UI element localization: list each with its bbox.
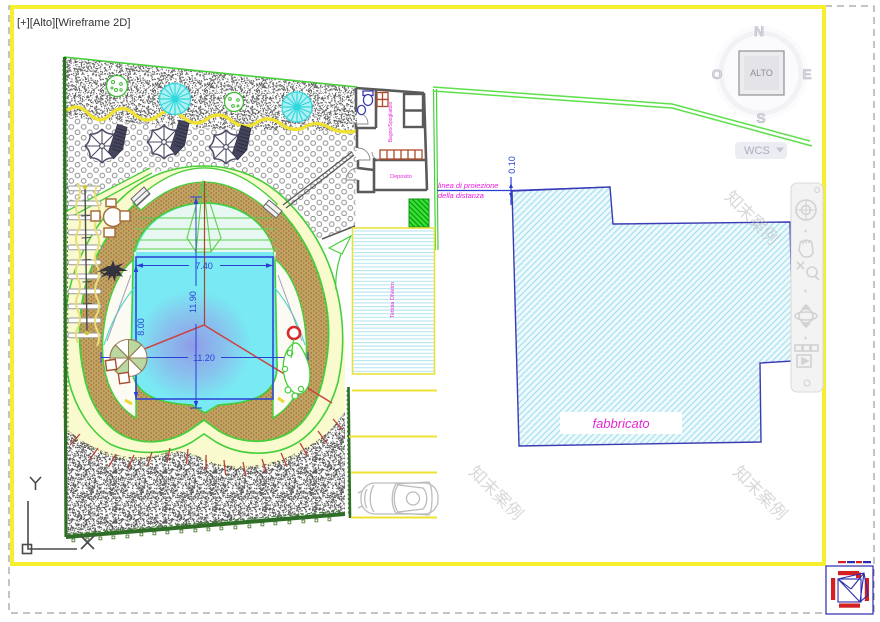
svg-text:8.00: 8.00	[136, 318, 146, 336]
svg-text:Bagno/Spogliatoio: Bagno/Spogliatoio	[388, 101, 394, 142]
svg-text:11.20: 11.20	[193, 353, 215, 363]
svg-text:E: E	[802, 66, 811, 82]
svg-text:0.10: 0.10	[507, 156, 517, 174]
svg-text:fabbricato: fabbricato	[592, 416, 649, 431]
svg-text:S: S	[756, 110, 765, 126]
svg-text:7.40: 7.40	[195, 261, 213, 271]
svg-text:11.90: 11.90	[188, 291, 198, 313]
svg-text:N: N	[754, 23, 764, 39]
svg-text:ALTO: ALTO	[750, 68, 773, 78]
svg-text:Tettoia DiVetro: Tettoia DiVetro	[390, 282, 396, 318]
svg-text:linea di proiezione: linea di proiezione	[438, 181, 498, 190]
svg-text:WCS: WCS	[744, 145, 770, 157]
svg-text:della distanza: della distanza	[438, 191, 484, 200]
svg-text:Deposito: Deposito	[390, 174, 412, 180]
svg-text:[+][Alto][Wireframe 2D]: [+][Alto][Wireframe 2D]	[17, 17, 130, 29]
svg-text:O: O	[712, 66, 723, 82]
